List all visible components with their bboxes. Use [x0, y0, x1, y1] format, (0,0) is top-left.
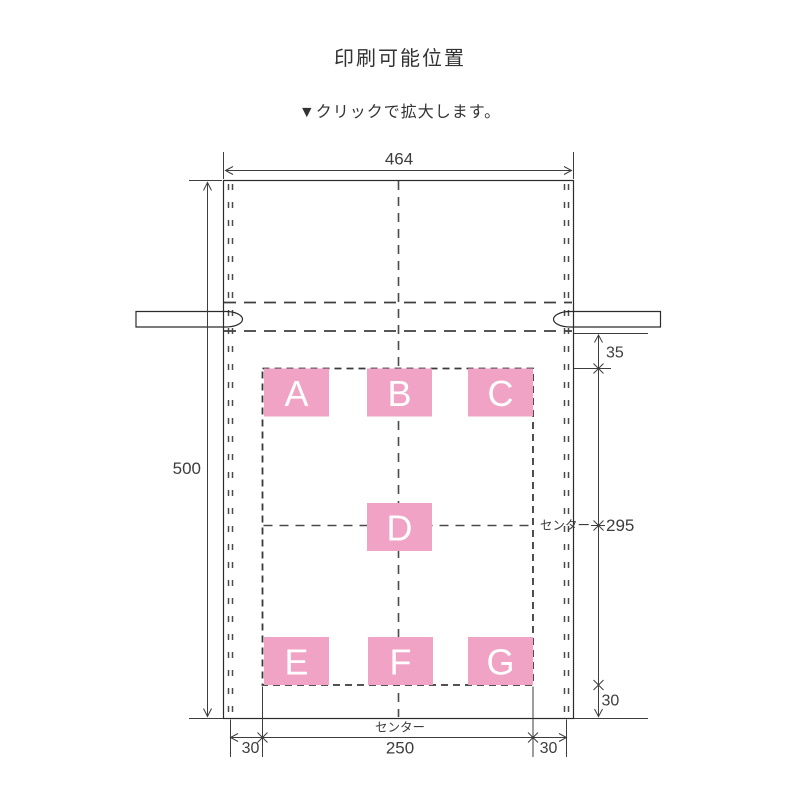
dim-print-width-value: 250 — [386, 739, 414, 758]
print-zone-b-label: B — [387, 373, 411, 414]
print-zone-c-label: C — [488, 373, 514, 414]
print-position-diagram[interactable]: A B C D E F G 464 500 35 295 30 — [0, 0, 800, 800]
center-label-side: センター — [540, 519, 590, 533]
center-label-bottom: センター — [375, 721, 425, 735]
print-zone-d-label: D — [387, 508, 413, 549]
print-zone-g-label: G — [486, 642, 514, 683]
print-zone-e-label: E — [284, 642, 308, 683]
drawstring-cord-left — [136, 311, 243, 327]
dim-bag-width: 464 — [224, 150, 574, 180]
dim-bag-height-value: 500 — [173, 459, 201, 478]
dim-bag-height: 500 — [173, 181, 222, 717]
dim-right-column: 35 295 30 センター — [540, 334, 648, 719]
dim-bag-width-value: 464 — [385, 150, 413, 169]
dim-print-bottom-offset-value: 30 — [602, 693, 620, 710]
dim-print-height-value: 295 — [606, 516, 634, 535]
dim-print-top-offset-value: 35 — [606, 345, 624, 362]
print-zone-f-label: F — [390, 642, 412, 683]
dim-print-right-offset-value: 30 — [540, 740, 558, 757]
dim-print-left-offset-value: 30 — [242, 740, 260, 757]
dim-bottom-row: センター 30 250 30 — [189, 687, 567, 758]
print-zone-a-label: A — [284, 373, 308, 414]
drawstring-cord-right — [554, 311, 661, 327]
